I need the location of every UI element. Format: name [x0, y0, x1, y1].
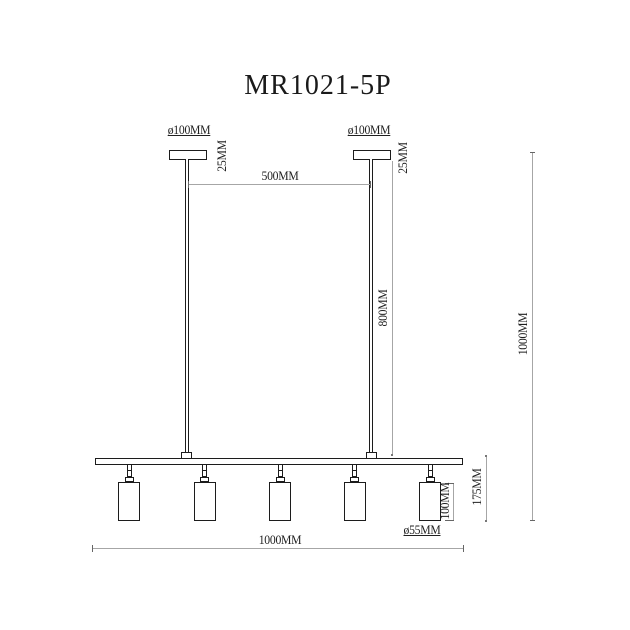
dim-label-bar-length: 1000MM	[259, 532, 302, 548]
dim-tick	[530, 152, 535, 153]
spotlight-stem	[202, 464, 207, 477]
dim-label-canopy-right-thickness: 25MM	[395, 142, 411, 173]
dim-label-spot-diameter: ø55MM	[403, 522, 440, 538]
technical-drawing: MR1021-5P 500MM 800MM	[0, 0, 630, 630]
dim-tick	[92, 545, 93, 552]
dim-tick	[188, 181, 189, 188]
dim-tick	[370, 181, 371, 188]
dim-tick	[485, 455, 487, 457]
spotlight-stem	[428, 464, 433, 477]
stem-joint	[128, 470, 131, 471]
stem-joint	[279, 470, 282, 471]
dim-label-rod-spacing: 500MM	[261, 168, 298, 184]
spotlight-stem	[352, 464, 357, 477]
dim-label-canopy-left-thickness: 25MM	[214, 140, 230, 171]
spotlight-head	[269, 482, 291, 521]
rod-right	[369, 159, 373, 453]
spotlight-3	[269, 464, 291, 521]
dim-line-spot-height	[453, 483, 454, 521]
dim-tick	[463, 545, 464, 552]
dim-line-overall-height	[532, 152, 533, 521]
spotlight-stem	[278, 464, 283, 477]
spotlight-head	[194, 482, 216, 521]
dim-tick	[445, 520, 454, 521]
dim-label-canopy-left-diameter: ø100MM	[168, 122, 211, 138]
spotlight-stem	[127, 464, 132, 477]
dim-label-rod-drop: 800MM	[375, 289, 391, 326]
product-title: MR1021-5P	[244, 70, 391, 102]
stem-joint	[203, 470, 206, 471]
rod-left	[185, 159, 189, 453]
dim-tick	[530, 520, 535, 521]
spotlight-head	[118, 482, 140, 521]
stem-joint	[353, 470, 356, 471]
dim-label-overall-height: 1000MM	[515, 313, 531, 356]
spotlight-2	[194, 464, 216, 521]
spotlight-1	[118, 464, 140, 521]
dim-line-bar-length	[92, 548, 464, 549]
dim-tick	[485, 520, 487, 522]
spotlight-4	[344, 464, 366, 521]
dim-line-spot-drop	[486, 456, 487, 521]
dim-label-spot-height: 100MM	[437, 482, 453, 519]
dim-tick	[391, 454, 393, 456]
dim-line-rod-spacing	[189, 184, 370, 185]
spotlight-head	[344, 482, 366, 521]
dim-label-spot-drop: 175MM	[469, 468, 485, 505]
stem-joint	[429, 470, 432, 471]
dim-label-canopy-right-diameter: ø100MM	[348, 122, 391, 138]
dim-line-rod-drop	[392, 161, 393, 456]
